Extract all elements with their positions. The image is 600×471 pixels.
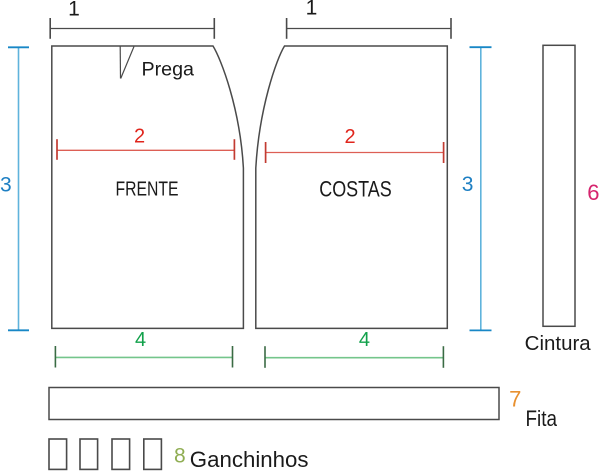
- svg-text:3: 3: [0, 173, 12, 196]
- svg-text:6: 6: [587, 180, 599, 205]
- svg-text:1: 1: [68, 0, 80, 20]
- svg-text:7: 7: [509, 387, 521, 412]
- svg-text:1: 1: [306, 0, 318, 20]
- svg-text:Cintura: Cintura: [525, 333, 592, 355]
- svg-text:FRENTE: FRENTE: [116, 179, 179, 201]
- svg-text:3: 3: [462, 173, 474, 196]
- svg-text:Fita: Fita: [526, 406, 558, 431]
- svg-text:4: 4: [135, 329, 146, 351]
- svg-text:2: 2: [344, 126, 355, 148]
- svg-text:Ganchinhos: Ganchinhos: [190, 447, 309, 471]
- svg-text:4: 4: [359, 329, 370, 351]
- svg-text:2: 2: [134, 126, 145, 148]
- svg-text:Prega: Prega: [142, 59, 195, 80]
- svg-text:COSTAS: COSTAS: [319, 176, 392, 201]
- svg-text:8: 8: [174, 444, 186, 467]
